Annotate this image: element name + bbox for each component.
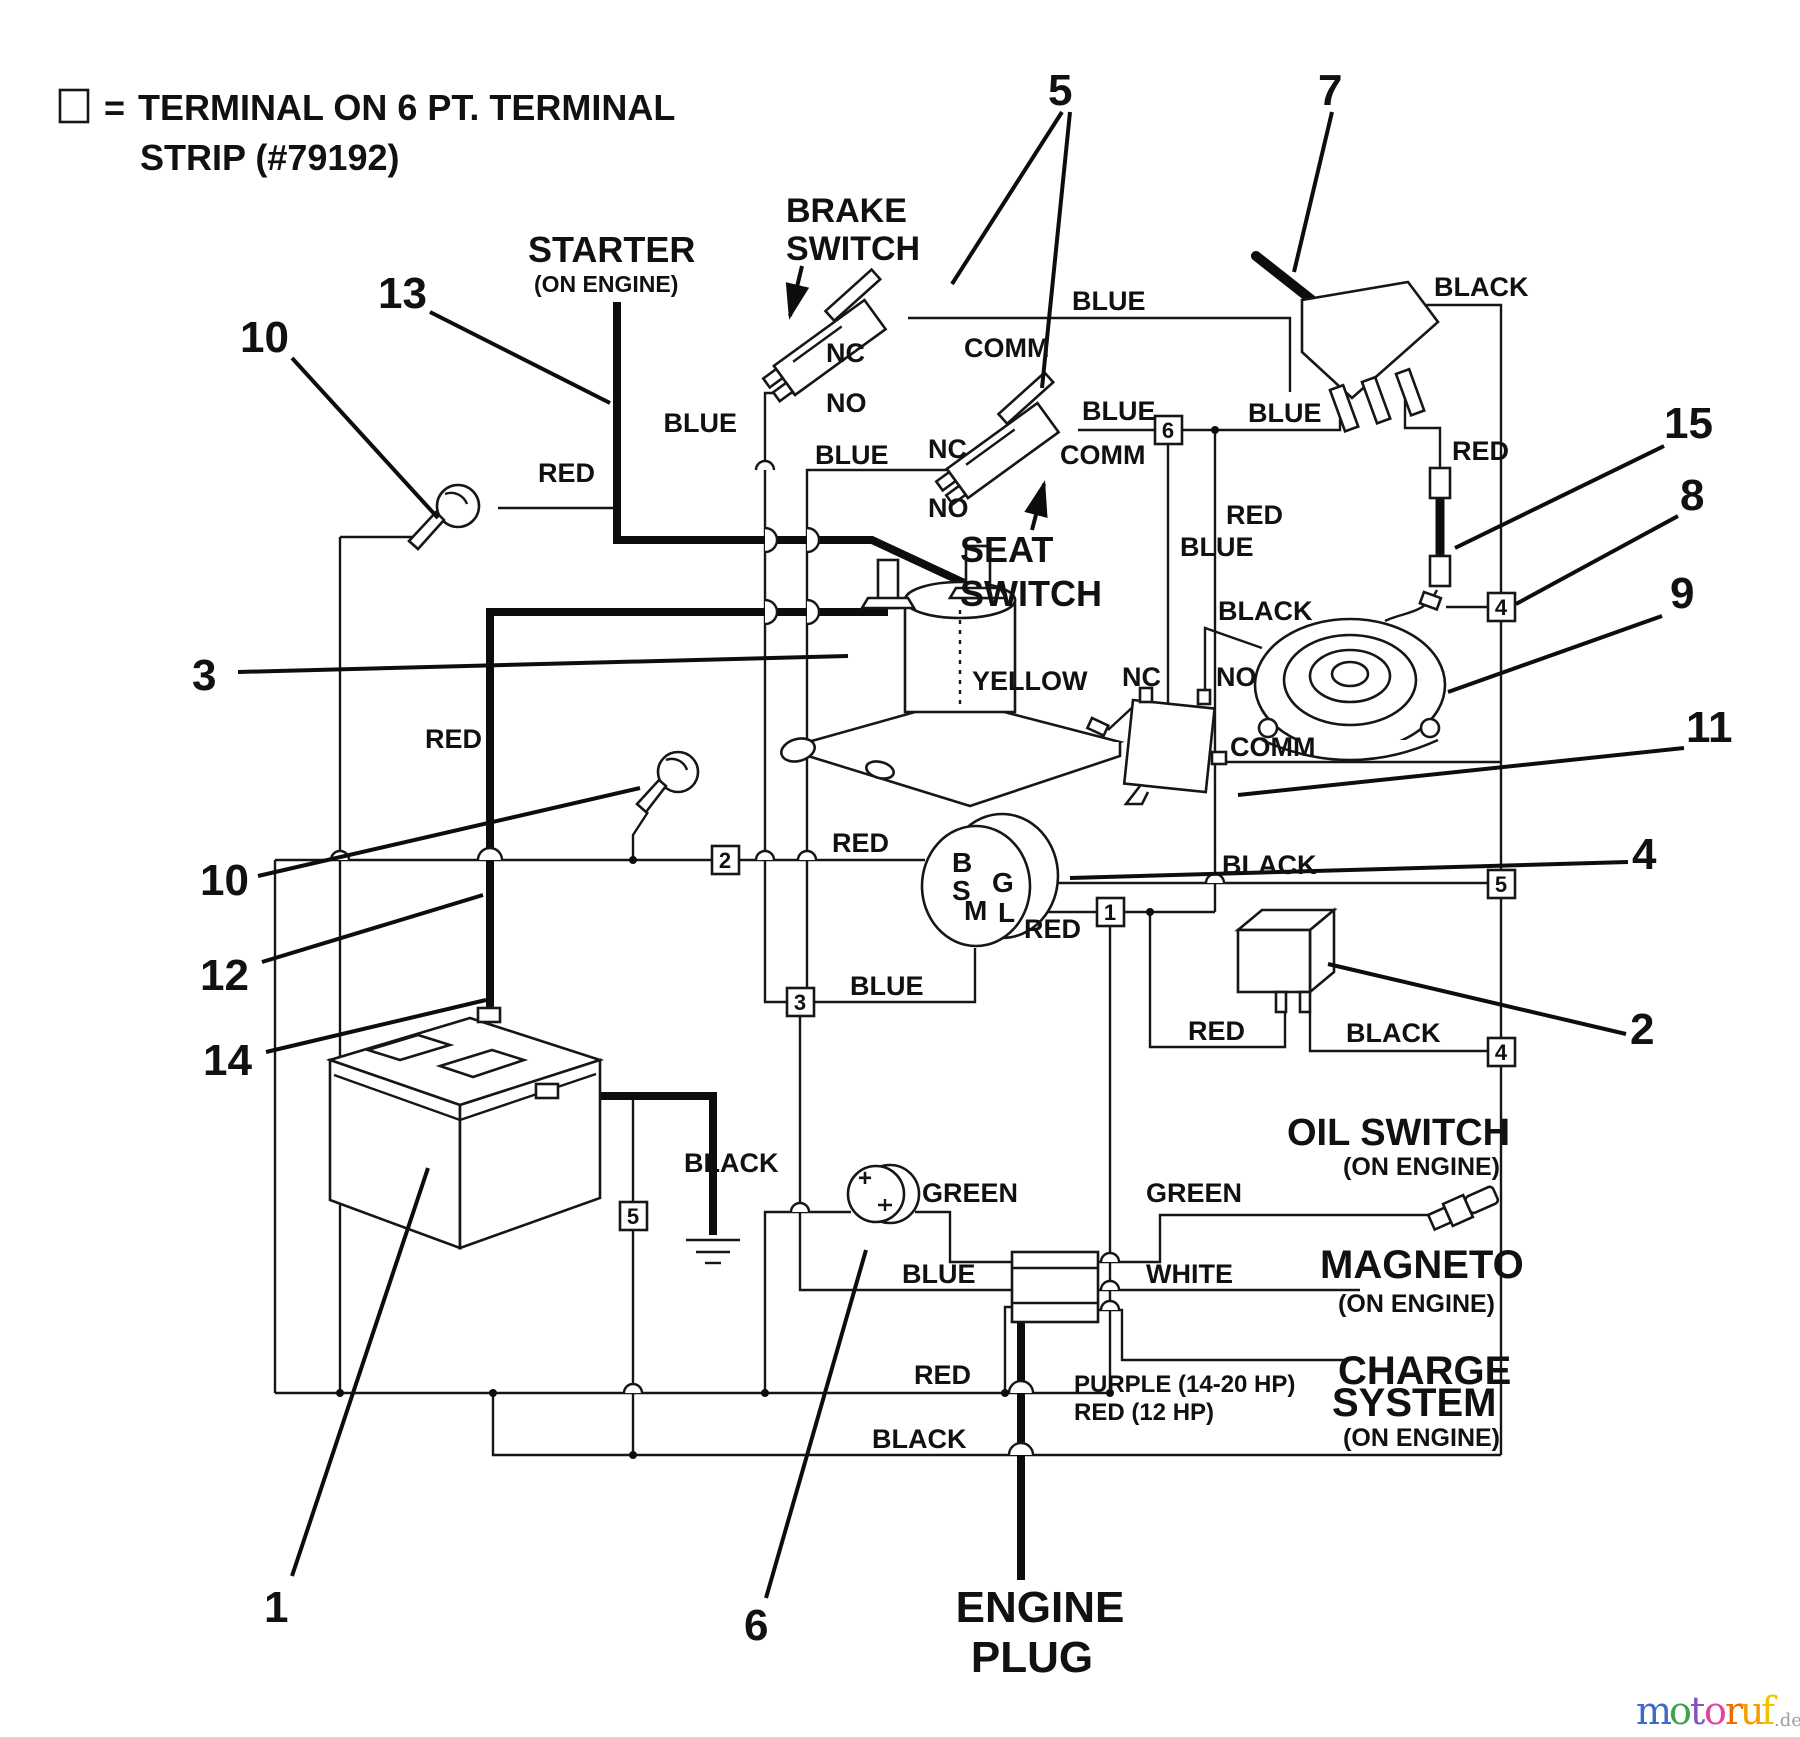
terminal-1-number: 1: [1104, 900, 1116, 925]
meter-pin: [1276, 992, 1286, 1012]
wire-blue-brake-no: [765, 393, 797, 1002]
terminal-4-lower-number: 4: [1495, 1040, 1508, 1065]
meter-front: [1238, 930, 1310, 992]
hop: [807, 528, 819, 552]
callout-3: 3: [192, 651, 216, 700]
key-shaft: [637, 780, 666, 812]
callout-14: 14: [203, 1036, 252, 1085]
gauge-plus: +: [858, 1165, 872, 1192]
wire-label-red-ign-l: RED: [1024, 914, 1081, 944]
junction: [629, 1451, 637, 1459]
callout-9: 9: [1670, 569, 1694, 618]
wire-purple: [1098, 1310, 1348, 1360]
hop: [756, 851, 774, 860]
leader-1: [292, 1168, 428, 1576]
junction: [489, 1389, 497, 1397]
wire-label-black-bottom: BLACK: [872, 1424, 967, 1454]
wiring-diagram-page: = TERMINAL ON 6 PT. TERMINAL STRIP (#791…: [0, 0, 1800, 1737]
micro-switch-bracket: [1126, 786, 1148, 804]
seat-comm-label: COMM: [1060, 440, 1145, 470]
leader-8: [1516, 516, 1678, 604]
seat-switch-terminal: [936, 472, 955, 490]
wire-green-left: [915, 1212, 1012, 1262]
wire-label-black-ign-g: BLACK: [1222, 850, 1317, 880]
wire-label-yellow: YELLOW: [972, 666, 1088, 696]
leader-10b: [258, 788, 640, 876]
leader-3: [238, 656, 848, 672]
magneto-label: MAGNETO: [1320, 1243, 1524, 1287]
key-icon-1: [409, 485, 479, 549]
solenoid-ear: [779, 735, 818, 765]
magneto-sub: (ON ENGINE): [1338, 1290, 1495, 1318]
wire-label-red-bottom: RED: [914, 1360, 971, 1390]
seat-no-label: NO: [928, 493, 969, 523]
wire-label-black-toggle: BLACK: [1434, 272, 1529, 302]
legend-terminal-square: [60, 90, 88, 122]
legend-equals: =: [104, 87, 125, 128]
watermark-letter: m: [1636, 1689, 1672, 1733]
ignition-m: M: [964, 895, 987, 926]
brake-switch-terminal: [773, 383, 792, 401]
charge-label-2: SYSTEM: [1332, 1381, 1496, 1425]
solenoid-base-edge: [808, 742, 1120, 806]
micro-switch: [1124, 688, 1226, 804]
meter-pin: [1300, 992, 1310, 1012]
ignition-l: L: [998, 897, 1015, 928]
junction: [761, 1389, 769, 1397]
wire-label-green-right: GREEN: [1146, 1178, 1242, 1208]
micro-nc-label: NC: [1122, 662, 1161, 692]
hop: [807, 600, 819, 624]
brake-label-arrow: [790, 266, 802, 316]
wire-label-white: WHITE: [1146, 1259, 1233, 1289]
callout-7: 7: [1318, 66, 1342, 115]
seat-nc-label: NC: [928, 434, 967, 464]
seat-label-1: SEAT: [960, 529, 1053, 570]
wire-label-blue-3box: BLUE: [850, 971, 924, 1001]
wire-label-blue-6-toggle: BLUE: [1248, 398, 1322, 428]
watermark-suffix: .de: [1774, 1710, 1800, 1731]
hour-meter: [1238, 910, 1334, 1012]
charge-sub: (ON ENGINE): [1343, 1424, 1500, 1452]
cable-starter: [617, 302, 975, 588]
terminal-5-right-number: 5: [1495, 872, 1507, 897]
callout-11: 11: [1686, 703, 1733, 752]
hop: [1009, 1443, 1033, 1455]
seat-label-2: SWITCH: [960, 573, 1102, 614]
gauge-face: [848, 1166, 904, 1222]
wire-label-red-meter: RED: [1188, 1016, 1245, 1046]
wire-label-black-battery: BLACK: [684, 1148, 779, 1178]
wire-label-blue-brake-comm: BLUE: [1072, 286, 1146, 316]
wire-label-purple-note1: PURPLE (14-20 HP): [1074, 1371, 1295, 1398]
junction: [629, 856, 637, 864]
ignition-face: [922, 826, 1030, 946]
wires: [275, 305, 1501, 1455]
ignition-g: G: [992, 867, 1014, 898]
brake-comm-label: COMM: [964, 333, 1049, 363]
callout-4: 4: [1632, 830, 1657, 879]
battery-post-negative: [536, 1084, 558, 1098]
wire-label-green-left: GREEN: [922, 1178, 1018, 1208]
callout-8: 8: [1680, 471, 1704, 520]
leader-4: [1070, 862, 1628, 878]
leader-12: [262, 895, 483, 962]
engine-plug-body: [1012, 1252, 1098, 1322]
wire-label-red-key2: RED: [832, 828, 889, 858]
engine-plug-label-1: ENGINE: [956, 1583, 1125, 1632]
micro-no-label: NO: [1216, 662, 1257, 692]
engine-plug-label-2: PLUG: [971, 1633, 1093, 1682]
battery-post-positive: [478, 1008, 500, 1022]
brake-switch-terminal: [763, 369, 782, 387]
junction: [336, 1389, 344, 1397]
hop: [478, 848, 502, 860]
callout-6: 6: [744, 1601, 768, 1650]
hop: [756, 461, 774, 470]
hop: [791, 1203, 809, 1212]
watermark-letter: t: [1690, 1689, 1705, 1733]
micro-comm-label: COMM: [1230, 732, 1315, 762]
legend-line1: TERMINAL ON 6 PT. TERMINAL: [138, 87, 675, 128]
cable-battery-positive: [490, 612, 888, 1018]
callout-10b: 10: [200, 856, 249, 905]
brake-label-2: SWITCH: [786, 230, 920, 268]
callout-5: 5: [1048, 66, 1072, 115]
wire-label-blue-6-down: BLUE: [1180, 532, 1254, 562]
fuse-cap: [1430, 556, 1450, 586]
callout-1: 1: [264, 1583, 288, 1632]
toggle-leg: [1396, 369, 1424, 415]
fuse-cap: [1430, 468, 1450, 498]
battery: [330, 1008, 600, 1248]
brake-no-label: NO: [826, 388, 867, 418]
starter-label: STARTER: [528, 229, 695, 270]
leader-9: [1448, 616, 1662, 692]
wire-label-red-starter: RED: [538, 458, 595, 488]
ignition-b: B: [952, 847, 972, 878]
terminal-5-left-number: 5: [627, 1204, 639, 1229]
junction: [629, 1092, 637, 1100]
hop: [624, 1384, 642, 1393]
legend-line2: STRIP (#79192): [140, 137, 399, 178]
leader-13: [430, 312, 610, 403]
terminal-3-number: 3: [794, 990, 806, 1015]
callout-2: 2: [1630, 1005, 1654, 1054]
wire-label-blue-seat-6: BLUE: [1082, 396, 1156, 426]
hop: [1101, 1281, 1119, 1290]
solenoid-spade: [1087, 718, 1108, 736]
wire-label-blue-plug: BLUE: [902, 1259, 976, 1289]
engine-plug: [1012, 1252, 1098, 1322]
wire-label-blue-seat-nc: BLUE: [815, 440, 889, 470]
toggle-leg: [1362, 377, 1390, 423]
wire-label-red-fuse: RED: [1452, 436, 1509, 466]
watermark-letter: o: [1704, 1689, 1727, 1733]
watermark-letter: o: [1669, 1689, 1692, 1733]
key-shaft: [409, 512, 444, 549]
brake-nc-label: NC: [826, 338, 865, 368]
wire-blue-plug: [800, 1016, 1012, 1290]
leader-6: [766, 1250, 866, 1598]
key-icon-2: [637, 752, 698, 812]
clutch-bolt: [1421, 719, 1439, 737]
callout-12: 12: [200, 951, 249, 1000]
hop: [1009, 1381, 1033, 1393]
wire-gauge-left: [765, 1212, 851, 1393]
callout-10a: 10: [240, 313, 289, 362]
hop: [765, 528, 777, 552]
solenoid-nut: [862, 598, 914, 608]
callout-15: 15: [1664, 399, 1713, 448]
junction: [1001, 1389, 1009, 1397]
seat-label-arrow: [1032, 484, 1044, 530]
brake-label-1: BRAKE: [786, 192, 907, 230]
wire-label-red-toggle-down: RED: [1226, 500, 1283, 530]
oil-switch-sub: (ON ENGINE): [1343, 1153, 1500, 1181]
micro-switch-body: [1124, 700, 1214, 792]
wire-label-blue-brake-no: BLUE: [664, 408, 738, 438]
wire-label-red-cable: RED: [425, 724, 482, 754]
clutch-ring: [1332, 662, 1368, 686]
terminal-4-upper-number: 4: [1495, 595, 1508, 620]
wire-label-purple-note2: RED (12 HP): [1074, 1399, 1214, 1426]
callout-13: 13: [378, 269, 427, 318]
micro-switch-post: [1198, 690, 1210, 704]
leader-5a: [952, 112, 1062, 284]
oil-sensor: [1427, 1183, 1501, 1233]
hop: [765, 600, 777, 624]
hop: [798, 851, 816, 860]
terminal-6-number: 6: [1162, 418, 1174, 443]
wire-key2-stub: [633, 812, 648, 860]
hop: [1101, 1301, 1119, 1310]
starter-sub-label: (ON ENGINE): [534, 271, 678, 297]
oil-sensor-barrel: [1464, 1186, 1499, 1215]
brake-switch: [749, 269, 906, 405]
terminal-2-number: 2: [719, 848, 731, 873]
micro-switch-post: [1212, 752, 1226, 764]
junction: [1146, 908, 1154, 916]
wire-label-black-micro: BLACK: [1218, 596, 1313, 626]
hop: [1101, 1253, 1119, 1262]
leader-7: [1294, 112, 1332, 272]
wire-label-black-meter: BLACK: [1346, 1018, 1441, 1048]
wiring-diagram: = TERMINAL ON 6 PT. TERMINAL STRIP (#791…: [0, 0, 1800, 1737]
watermark-logo: m o t o r u f .de: [1636, 1689, 1800, 1733]
ground-symbol: [686, 1240, 740, 1263]
oil-switch-label: OIL SWITCH: [1287, 1112, 1510, 1154]
junction: [1211, 426, 1219, 434]
leader-10a: [292, 358, 438, 518]
